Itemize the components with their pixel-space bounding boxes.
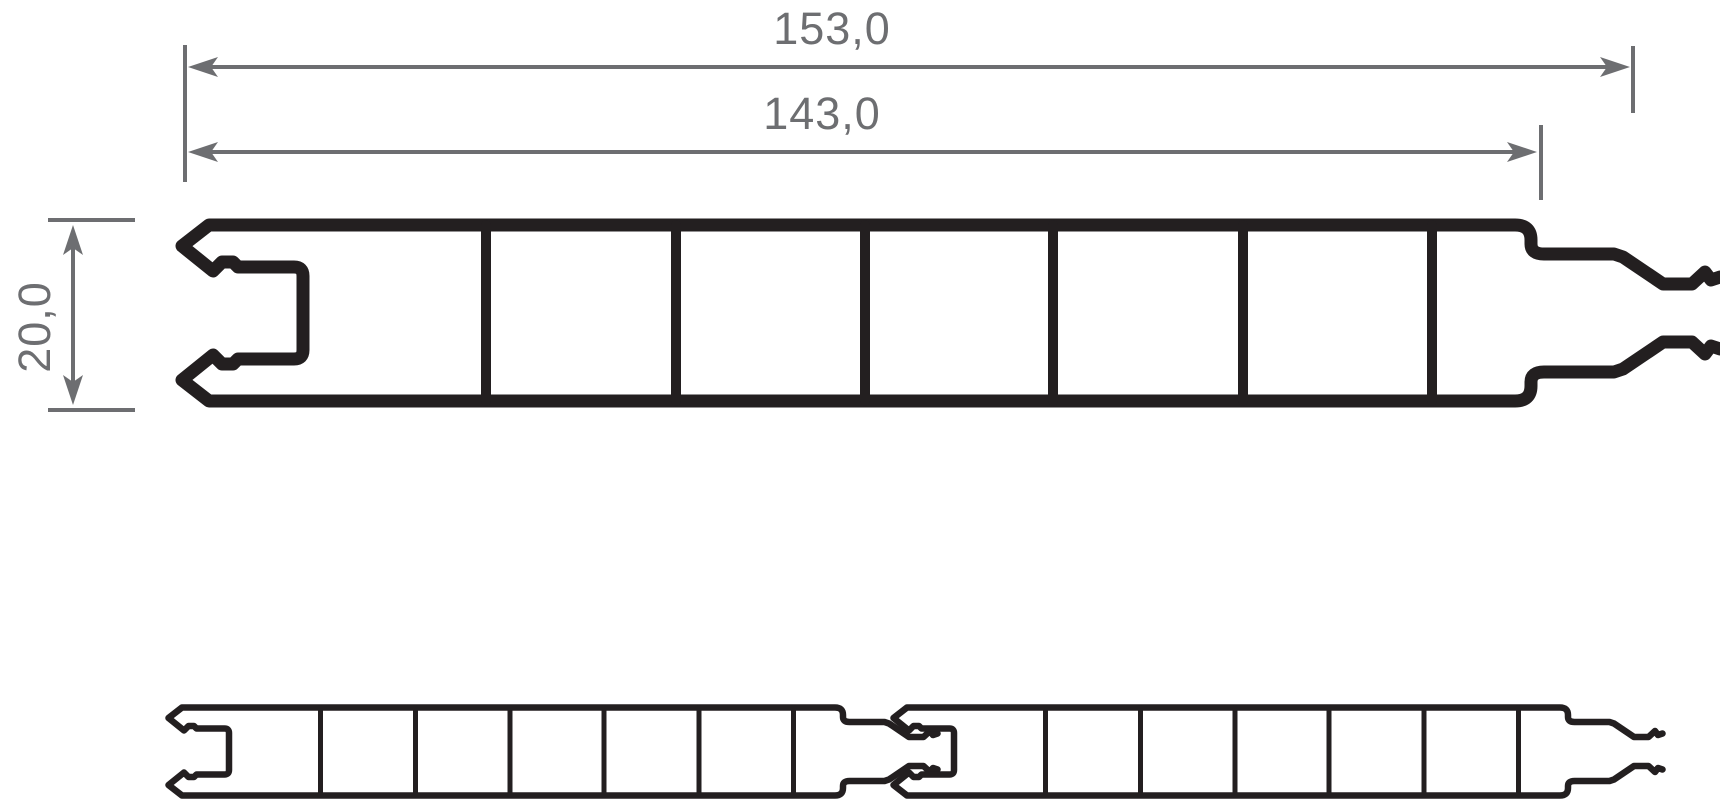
joined-left-profile bbox=[169, 708, 938, 796]
main-profile-view bbox=[182, 225, 1720, 401]
technical-drawing-page: 153,0 143,0 20,0 bbox=[0, 0, 1720, 800]
profile-outline bbox=[182, 225, 1720, 401]
dimension-label-total-width: 153,0 bbox=[773, 3, 891, 54]
joined-right-profile bbox=[894, 708, 1663, 796]
dimension-label-visible-width: 143,0 bbox=[763, 88, 881, 139]
dimension-label-profile-height: 20,0 bbox=[9, 281, 60, 373]
dimension-profile-height: 20,0 bbox=[9, 220, 135, 410]
dimension-total-width: 153,0 bbox=[185, 3, 1633, 182]
joined-profiles-view bbox=[169, 708, 1663, 796]
technical-drawing-canvas: 153,0 143,0 20,0 bbox=[0, 0, 1720, 800]
dimension-visible-width: 143,0 bbox=[188, 88, 1541, 200]
